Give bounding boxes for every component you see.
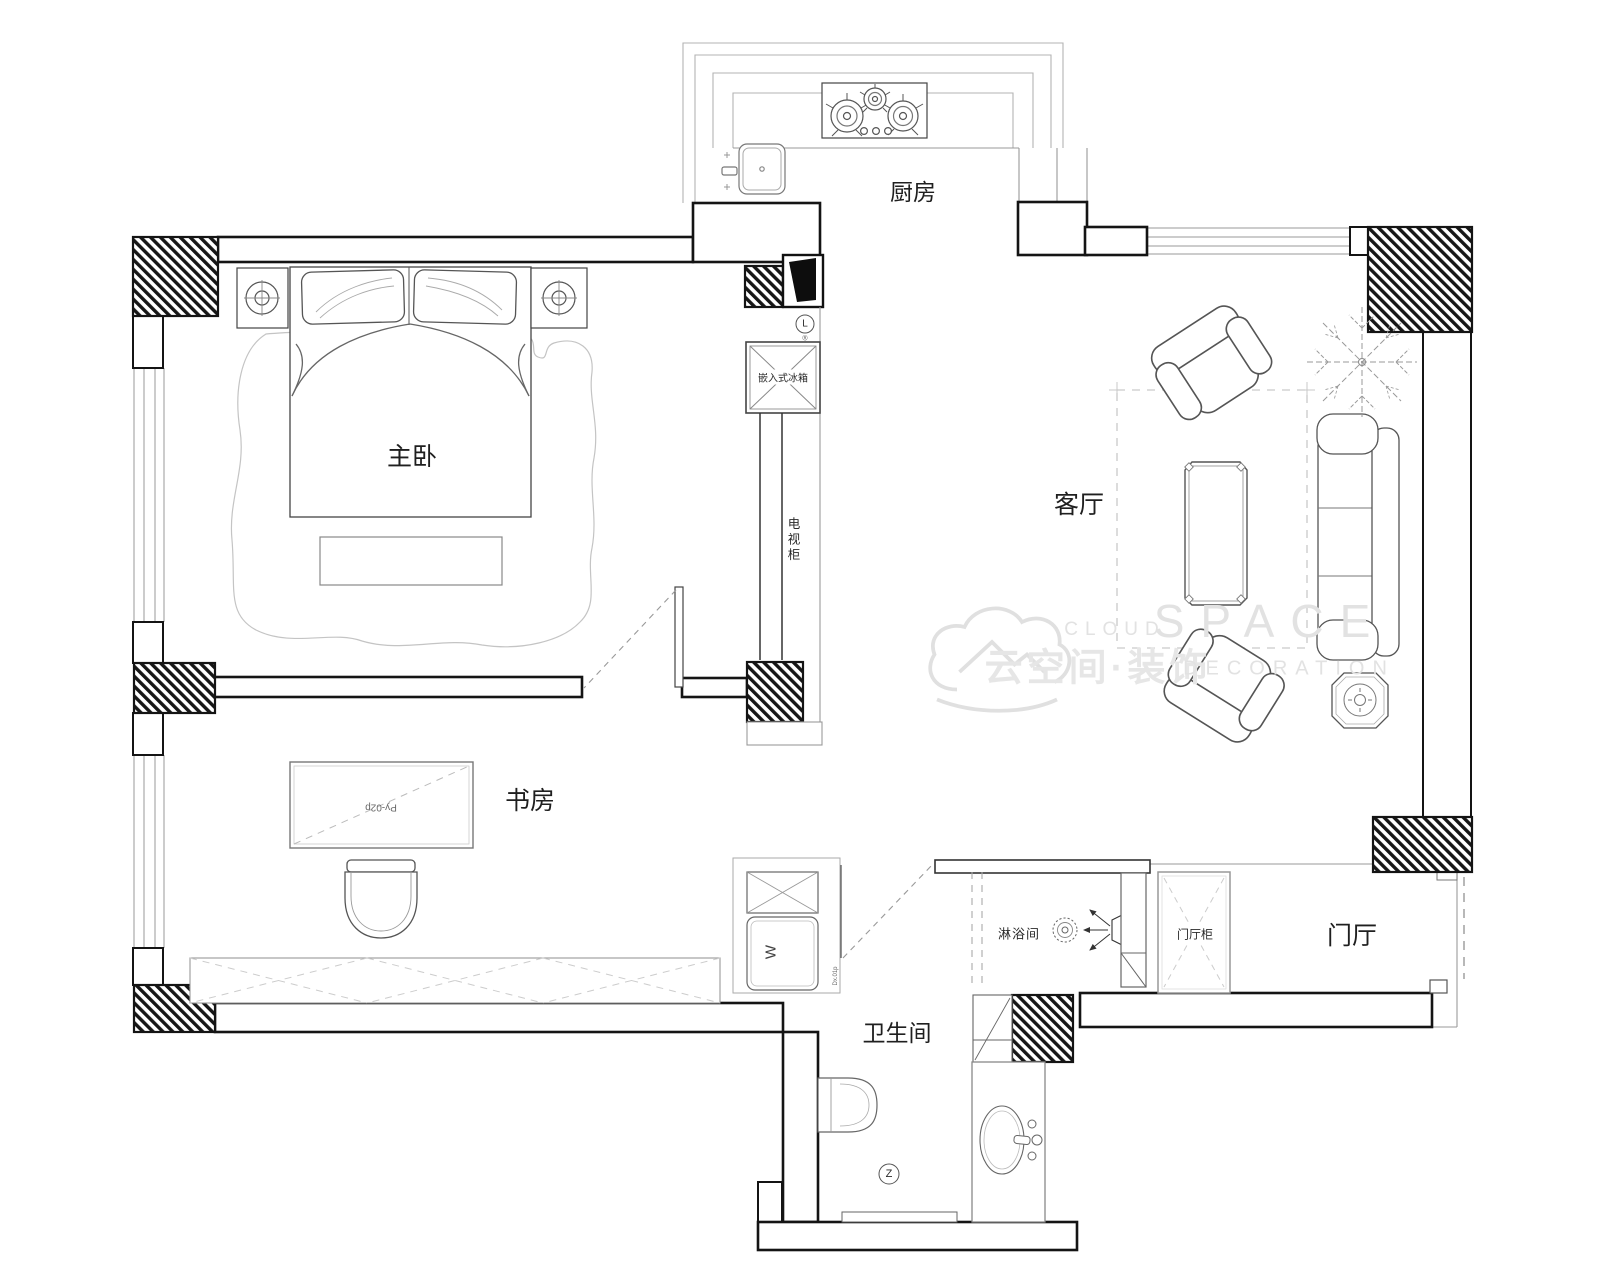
symbol-drain-z: Z	[886, 1168, 893, 1180]
room-label-entry-hall: 门厅	[1327, 916, 1377, 952]
stove	[822, 83, 927, 138]
floor-drain	[1053, 918, 1077, 942]
room-label-shower: 淋浴间	[998, 924, 1040, 943]
symbol-light: L	[802, 319, 808, 330]
sofa	[1317, 414, 1399, 660]
bed-bench	[320, 537, 502, 585]
room-label-living-room: 客厅	[1054, 485, 1104, 521]
side-table	[1332, 673, 1388, 728]
tv-cabinet-lines	[760, 413, 782, 660]
shower-wall	[1121, 873, 1146, 987]
label-fridge: 嵌入式冰箱	[756, 370, 810, 385]
window-left-bedroom	[134, 368, 164, 622]
window-top-living	[1147, 228, 1350, 254]
label-entry-cabinet: 门厅柜	[1175, 926, 1215, 943]
label-desk-code: Py-02p	[365, 802, 397, 813]
window-left-study	[134, 755, 164, 948]
bathroom-threshold	[842, 1212, 957, 1222]
bathroom-door-swing	[843, 864, 933, 958]
wardrobe	[190, 958, 720, 1003]
coffee-table	[1185, 462, 1247, 605]
bed	[290, 267, 531, 517]
floor-plan: CLOUD SPACE 云空间·装饰 DECORATION 厨房 主卧 客厅 书…	[0, 0, 1600, 1280]
symbol-washer: W	[763, 945, 780, 959]
room-label-kitchen: 厨房	[890, 173, 936, 207]
study-chair	[345, 860, 417, 938]
room-label-bathroom: 卫生间	[863, 1014, 932, 1048]
label-tv-cabinet: 电视柜	[784, 517, 803, 564]
room-label-study: 书房	[505, 781, 555, 817]
armchair-bottom	[1155, 621, 1291, 750]
plant	[1307, 307, 1417, 417]
laundry-column	[733, 858, 841, 993]
floor-plan-drawing	[0, 0, 1600, 1280]
kitchen-door	[783, 255, 823, 307]
shower-glass-partition	[972, 872, 982, 987]
nightstand-right	[531, 268, 587, 328]
kitchen-sink	[722, 144, 785, 194]
armchair-top	[1142, 298, 1278, 428]
symbol-reg: ®	[802, 336, 807, 343]
vanity-sink	[972, 1062, 1045, 1222]
nightstand-left	[237, 268, 288, 328]
duct-box	[973, 995, 1012, 1063]
label-door-code: Dx.01p	[833, 966, 839, 985]
room-label-master-bedroom: 主卧	[387, 437, 437, 473]
toilet	[818, 1078, 877, 1132]
bedroom-door	[584, 587, 683, 688]
